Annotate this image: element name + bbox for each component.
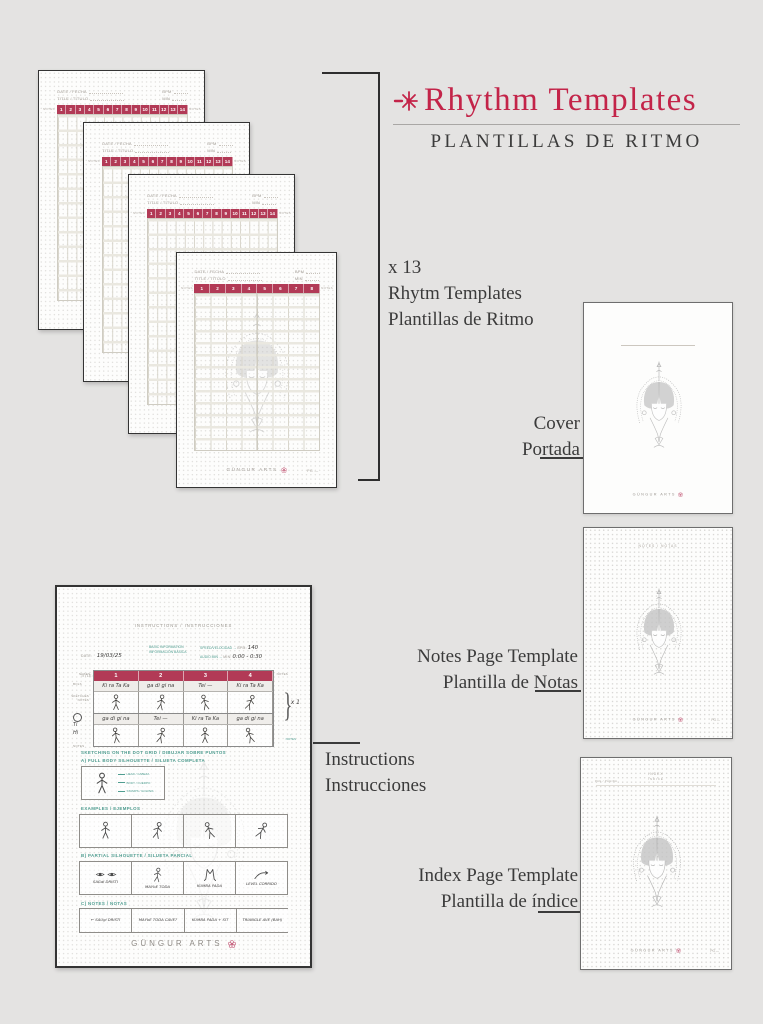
beat-number: 4 <box>85 105 94 114</box>
write-in-line <box>228 276 262 281</box>
stick-figure-icon <box>199 727 211 745</box>
beat-number: 2 <box>66 105 75 114</box>
beat-number: 10 <box>186 157 195 166</box>
partial-silhouette-row: SAGdi DRISTI MAYbE TODA KUMBA PADA LEVEL… <box>79 861 288 895</box>
sketch-cell <box>228 692 273 713</box>
partial-box: SAGdi DRISTI <box>79 861 131 895</box>
bpm-field-label: BPM <box>295 269 304 274</box>
notes-arrow-label: ↑ NOTES <box>286 733 296 741</box>
instructions-caption-en: Instructions <box>325 747 495 773</box>
notes-side-label: NOTES <box>279 211 291 215</box>
stick-figure-icon <box>153 693 168 713</box>
notes-margin-label: NOTES <box>73 745 84 749</box>
min-field-label: MIN <box>162 96 170 101</box>
notes-margin-label: NOTES <box>79 673 90 677</box>
write-in-line <box>219 141 233 146</box>
beat-number: 9 <box>222 209 231 218</box>
brand-flower-icon <box>676 948 681 953</box>
title-field-label: TITLE / TÍTULO <box>194 276 225 281</box>
quantity-label: x 13 <box>388 255 534 281</box>
min-field-label: MIN <box>207 148 215 153</box>
deity-illustration <box>627 359 691 455</box>
beat-number: 1 <box>94 671 139 681</box>
notes-page-preview: NOTES / NOTAS GÜNGUR ARTS PG — <box>583 527 733 739</box>
beat-number: 8 <box>304 284 320 293</box>
legend-pointer-line <box>118 791 125 792</box>
page-number-label: PG — <box>710 949 719 953</box>
sketch-cell <box>139 692 184 713</box>
beat-number: 6 <box>104 105 113 114</box>
partial-box: KUMBA PADA <box>183 861 235 895</box>
stick-figure-icon <box>94 771 110 797</box>
repeat-brace: } <box>283 687 292 725</box>
write-in-line <box>180 200 214 205</box>
notes-row: ← SAUgi DRISTI MAYbE TODA CAVE? KUMBA PA… <box>79 908 288 933</box>
beat-number: 5 <box>94 105 103 114</box>
bracket-bottom-arm <box>358 479 380 481</box>
beat-number: 4 <box>175 209 184 218</box>
beat-number: 14 <box>178 105 187 114</box>
beat-number: 5 <box>257 284 273 293</box>
rhythm-grid <box>194 293 320 451</box>
beat-number: 5 <box>139 157 148 166</box>
brand-name: GÜNGUR ARTS <box>633 718 676 722</box>
connector-line <box>540 457 583 459</box>
brand-logo: GÜNGUR ARTS <box>57 939 310 948</box>
beat-number: 4 <box>228 671 273 681</box>
beat-number: 6 <box>273 284 289 293</box>
notes-side-label: NOTES <box>43 107 55 111</box>
index-caption: Index Page Template Plantilla de índice <box>340 863 578 915</box>
bpm-field-label: BPM <box>252 193 261 198</box>
beat-number: 11 <box>195 157 204 166</box>
brand-name: GÜNGUR ARTS <box>131 939 223 948</box>
page-number-label: PG — <box>711 718 720 722</box>
index-corner-label: PAG / PÁGINA <box>595 779 617 783</box>
beat-number: 7 <box>113 105 122 114</box>
deity-illustration <box>623 813 691 915</box>
notes-caption-en: Notes Page Template <box>340 644 578 670</box>
min-field-label: MIN <box>252 200 260 205</box>
beat-number: 1 <box>194 284 210 293</box>
beat-number: 3 <box>184 671 229 681</box>
note-text: ← SAUgi DRISTI <box>91 918 120 923</box>
brand-flower-icon <box>228 940 236 948</box>
min-label: MIN: <box>223 655 231 659</box>
product-sheet: DATE / FECHA TITLE / TÍTULO BPM MIN NOTE… <box>0 0 763 1024</box>
basic-info-label: BASIC INFORMATION INFORMACIÓN BÁSICA <box>149 645 187 655</box>
brand-logo: GÜNGUR ARTS <box>581 948 731 953</box>
beat-header-bar: 1234567891011121314 <box>147 209 277 218</box>
beats-table: 1234 Ki ra Ta Kaga di gi naTei —Ki ra Ta… <box>93 670 274 747</box>
min-value: 0:00 - 0:30 <box>233 654 263 660</box>
sketch-cell <box>228 725 273 746</box>
write-in-line <box>179 193 213 198</box>
stick-figure-icon <box>251 819 272 843</box>
notes-side-label: NOTES <box>321 286 333 290</box>
bols-margin-label: BOLS <box>73 683 82 687</box>
stick-figure-icon <box>241 692 259 713</box>
write-in-line <box>305 276 319 281</box>
beat-number: 10 <box>231 209 240 218</box>
legend-labels: HEAD / CABEZA BODY / CUERPO STAMPS / GOL… <box>118 770 153 796</box>
beat-number: 11 <box>150 105 159 114</box>
beat-number: 9 <box>132 105 141 114</box>
audio-label: AUDIO MIN <box>200 655 218 659</box>
stick-figure-icon <box>99 821 112 841</box>
sketch-cell <box>184 692 229 713</box>
arrow-icon: → <box>233 646 236 650</box>
write-in-line <box>134 141 168 146</box>
instructions-page-preview: INSTRUCTIONS / INSTRUCCIONES DATE: 19/03… <box>55 585 312 968</box>
beat-number: 8 <box>122 105 131 114</box>
sketching-section-title: SKETCHING ON THE DOT GRID / DIBUJAR SOBR… <box>81 750 226 755</box>
instructions-page-title: INSTRUCTIONS / INSTRUCCIONES <box>57 623 310 628</box>
write-in-line <box>226 269 260 274</box>
partial-caption: KUMBA PADA <box>197 884 222 889</box>
date-field-label: DATE / FECHA <box>57 89 87 94</box>
beat-number: 4 <box>242 284 258 293</box>
legend-label: HEAD / CABEZA <box>118 770 153 779</box>
notes-side-label: NOTES <box>133 211 145 215</box>
beat-number: 2 <box>139 671 184 681</box>
bpm-field-label: BPM <box>207 141 216 146</box>
stack-caption-en: Rhytm Templates <box>388 281 534 307</box>
legend-box: HEAD / CABEZA BODY / CUERPO STAMPS / GOL… <box>81 766 165 800</box>
circle-symbol <box>73 713 82 722</box>
starburst-flower-icon <box>393 90 419 112</box>
sketch-row <box>94 725 273 746</box>
stick-figure-icon <box>200 819 219 842</box>
headline-block: Rhythm Templates PLANTILLAS DE RITMO <box>393 82 740 153</box>
sketch-cell <box>184 725 229 746</box>
beat-number: 3 <box>166 209 175 218</box>
notes-margin-label: NOTES <box>277 673 288 677</box>
legend-pointer-line <box>118 782 125 783</box>
index-page-preview: INDEX ÍNDICE PAG / PÁGINA GÜNGUR ARTS PG… <box>580 757 732 970</box>
bols-row: Ki ra Ta Kaga di gi naTei —Ki ra Ta Ka <box>94 681 273 692</box>
stick-figure-icon <box>149 820 166 843</box>
eyes-icon <box>95 871 117 878</box>
rhythm-template-page-front: DATE / FECHA TITLE / TÍTULO BPM MIN NOTE… <box>176 252 337 488</box>
bpm-value: 140 <box>248 645 258 651</box>
beat-number: 12 <box>160 105 169 114</box>
beat-header-bar: 1234 <box>94 671 273 681</box>
brand-flower-icon <box>678 717 683 722</box>
hand-bol-symbols: Ti Hi <box>73 713 82 737</box>
notes-box: KUMBA PADA + SIT <box>184 908 236 933</box>
partial-box: LEVEL CORRIDO <box>235 861 288 895</box>
legend-label: STAMPS / GOLPES <box>118 787 153 796</box>
beat-header-bar: 1234567891011121314 <box>57 105 187 114</box>
stick-figure-icon <box>110 694 122 712</box>
beat-number: 6 <box>149 157 158 166</box>
sketches-margin-label: SKETCHES NOTES <box>67 695 89 703</box>
page-number-label: PG — <box>307 469 318 473</box>
write-in-line <box>262 200 276 205</box>
speed-audio-fields: SPEED/VELOCIDAD → BPM: 140 AUDIO MIN → M… <box>200 644 262 662</box>
examples-row <box>79 814 288 848</box>
instructions-caption-es: Instrucciones <box>325 773 495 799</box>
beat-number: 7 <box>289 284 305 293</box>
beat-number: 9 <box>177 157 186 166</box>
write-in-line <box>172 96 186 101</box>
beat-number: 12 <box>250 209 259 218</box>
beat-number: 1 <box>102 157 111 166</box>
date-field-label: DATE / FECHA <box>147 193 177 198</box>
min-field-label: MIN <box>295 276 303 281</box>
beat-number: 10 <box>141 105 150 114</box>
beat-number: 6 <box>194 209 203 218</box>
beat-number: 5 <box>184 209 193 218</box>
cover-title-line <box>621 345 695 346</box>
beat-header-bar: 1234567891011121314 <box>102 157 232 166</box>
brand-logo: GÜNGUR ARTS <box>584 717 732 722</box>
cover-caption: Cover Portada <box>420 411 580 463</box>
cover-page-preview: GÜNGUR ARTS <box>583 302 733 514</box>
cover-caption-es: Portada <box>420 437 580 463</box>
notes-box: ← SAUgi DRISTI <box>79 908 131 933</box>
bol-cell: ga di gi na <box>228 714 273 724</box>
connector-line <box>313 742 360 744</box>
cover-caption-en: Cover <box>420 411 580 437</box>
beat-number: 4 <box>130 157 139 166</box>
beat-number: 1 <box>147 209 156 218</box>
note-text: MAYbE TODA CAVE? <box>139 918 177 923</box>
beat-number: 8 <box>212 209 221 218</box>
stick-figure-icon <box>242 725 259 746</box>
example-box <box>79 814 131 848</box>
bol-cell: Tei — <box>184 681 229 691</box>
template-header-fields: DATE / FECHA TITLE / TÍTULO BPM MIN <box>147 193 277 205</box>
notes-side-label: NOTES <box>88 159 100 163</box>
sketch-cell <box>94 692 139 713</box>
beat-number: 3 <box>226 284 242 293</box>
connector-line <box>535 690 581 692</box>
section-c-title: C) NOTES / NOTAS <box>81 901 127 906</box>
write-in-line <box>174 89 188 94</box>
beat-number: 13 <box>169 105 178 114</box>
stack-quantity-caption: x 13 Rhytm Templates Plantillas de Ritmo <box>388 255 534 332</box>
beat-number: 14 <box>223 157 232 166</box>
bpm-label: BPM: <box>237 646 247 650</box>
notes-caption-es: Plantilla de Notas <box>340 670 578 696</box>
title-field-label: TITLE / TÍTULO <box>147 200 178 205</box>
deity-illustration <box>627 586 691 682</box>
notes-caption: Notes Page Template Plantilla de Notas <box>340 644 578 696</box>
write-in-line <box>264 193 278 198</box>
title-divider <box>393 124 740 125</box>
note-text: KUMBA PADA + SIT <box>192 918 229 923</box>
section-a-title: A) FULL BODY SILHOUETTE / SILUETA COMPLE… <box>81 758 205 763</box>
index-header-rule <box>596 785 716 786</box>
notes-box: MAYbE TODA CAVE? <box>131 908 183 933</box>
bol-cell: Ki ra Ta Ka <box>228 681 273 691</box>
beat-number: 12 <box>205 157 214 166</box>
product-subtitle: PLANTILLAS DE RITMO <box>393 131 740 153</box>
stick-figure-icon <box>109 726 123 745</box>
index-page-heading: INDEX <box>581 772 731 776</box>
section-b-title: B) PARTIAL SILHOUETTE / SILUETA PARCIAL <box>81 853 192 858</box>
partial-caption: SAGdi DRISTI <box>93 880 118 885</box>
repeat-count: x 1 <box>291 699 300 706</box>
beat-number: 7 <box>203 209 212 218</box>
product-title: Rhythm Templates <box>424 82 697 119</box>
beat-number: 3 <box>121 157 130 166</box>
beat-number: 2 <box>210 284 226 293</box>
beat-number: 1 <box>57 105 66 114</box>
beat-number: 2 <box>111 157 120 166</box>
stick-figure-icon <box>151 866 164 884</box>
write-in-line <box>89 89 123 94</box>
beat-number: 14 <box>268 209 277 218</box>
sketch-row <box>94 692 273 714</box>
brand-name: GÜNGUR ARTS <box>226 467 277 472</box>
bol-cell: Ki ra Ta Ka <box>94 681 139 691</box>
date-value: 19/03/25 <box>97 653 122 659</box>
notes-page-heading: NOTES / NOTAS <box>584 544 732 548</box>
brand-flower-icon <box>281 467 287 473</box>
bol-cell: Ki ra Ta Ka <box>184 714 229 724</box>
notes-side-label: NOTES <box>189 107 201 111</box>
beat-number: 13 <box>214 157 223 166</box>
date-label: DATE: <box>81 654 92 658</box>
template-header-fields: DATE / FECHA TITLE / TÍTULO BPM MIN <box>102 141 232 153</box>
bol-cell: Tei — <box>139 714 184 724</box>
instructions-caption: Instructions Instrucciones <box>325 747 495 799</box>
notes-box: TRIANGLE AVE (BAH) <box>236 908 288 933</box>
speed-label: SPEED/VELOCIDAD <box>200 646 232 650</box>
bol-cell: ga di gi na <box>94 714 139 724</box>
example-box <box>131 814 183 848</box>
stick-figure-icon <box>197 692 213 712</box>
beat-number: 3 <box>76 105 85 114</box>
bol-cell: ga di gi na <box>139 681 184 691</box>
partial-caption: LEVEL CORRIDO <box>246 882 277 887</box>
legs-icon <box>203 868 217 882</box>
title-field-label: TITLE / TÍTULO <box>57 96 88 101</box>
brand-name: GÜNGUR ARTS <box>631 949 674 953</box>
brand-logo: GÜNGUR ARTS <box>584 492 732 497</box>
examples-section-title: EXAMPLES / EJEMPLOS <box>81 806 140 811</box>
arrow-icon: → <box>219 655 222 659</box>
beat-number: 11 <box>240 209 249 218</box>
legend-label: BODY / CUERPO <box>118 779 153 788</box>
notes-side-label: NOTES <box>234 159 246 163</box>
pointing-arm-icon <box>253 870 271 880</box>
connector-line <box>538 911 580 913</box>
sketch-cell <box>139 725 184 746</box>
beat-number: 13 <box>259 209 268 218</box>
example-box <box>183 814 235 848</box>
write-in-line <box>306 269 320 274</box>
example-box <box>235 814 288 848</box>
partial-box: MAYbE TODA <box>131 861 183 895</box>
brand-flower-icon <box>678 492 683 497</box>
partial-caption: MAYbE TODA <box>145 885 170 890</box>
date-field-label: DATE / FECHA <box>102 141 132 146</box>
beat-number: 7 <box>158 157 167 166</box>
brand-name: GÜNGUR ARTS <box>633 493 676 497</box>
template-header-fields: DATE / FECHA TITLE / TÍTULO BPM MIN <box>194 269 320 281</box>
date-field-label: DATE / FECHA <box>194 269 224 274</box>
write-in-line <box>135 148 169 153</box>
write-in-line <box>217 148 231 153</box>
sketch-cell <box>94 725 139 746</box>
title-field-label: TITLE / TÍTULO <box>102 148 133 153</box>
stick-figure-icon <box>152 725 168 746</box>
bracket-vertical <box>378 72 380 481</box>
bpm-field-label: BPM <box>162 89 171 94</box>
beat-number: 8 <box>167 157 176 166</box>
beat-number: 2 <box>156 209 165 218</box>
template-header-fields: DATE / FECHA TITLE / TÍTULO BPM MIN <box>57 89 187 101</box>
bracket-top-arm <box>322 72 380 74</box>
index-caption-en: Index Page Template <box>340 863 578 889</box>
bols-row: ga di gi naTei —Ki ra Ta Kaga di gi na <box>94 714 273 725</box>
write-in-line <box>90 96 124 101</box>
notes-side-label: NOTES <box>181 286 193 290</box>
beat-header-bar: 12345678 <box>194 284 320 293</box>
note-text: TRIANGLE AVE (BAH) <box>242 918 282 923</box>
legend-pointer-line <box>118 774 125 775</box>
stack-caption-es: Plantillas de Ritmo <box>388 307 534 333</box>
